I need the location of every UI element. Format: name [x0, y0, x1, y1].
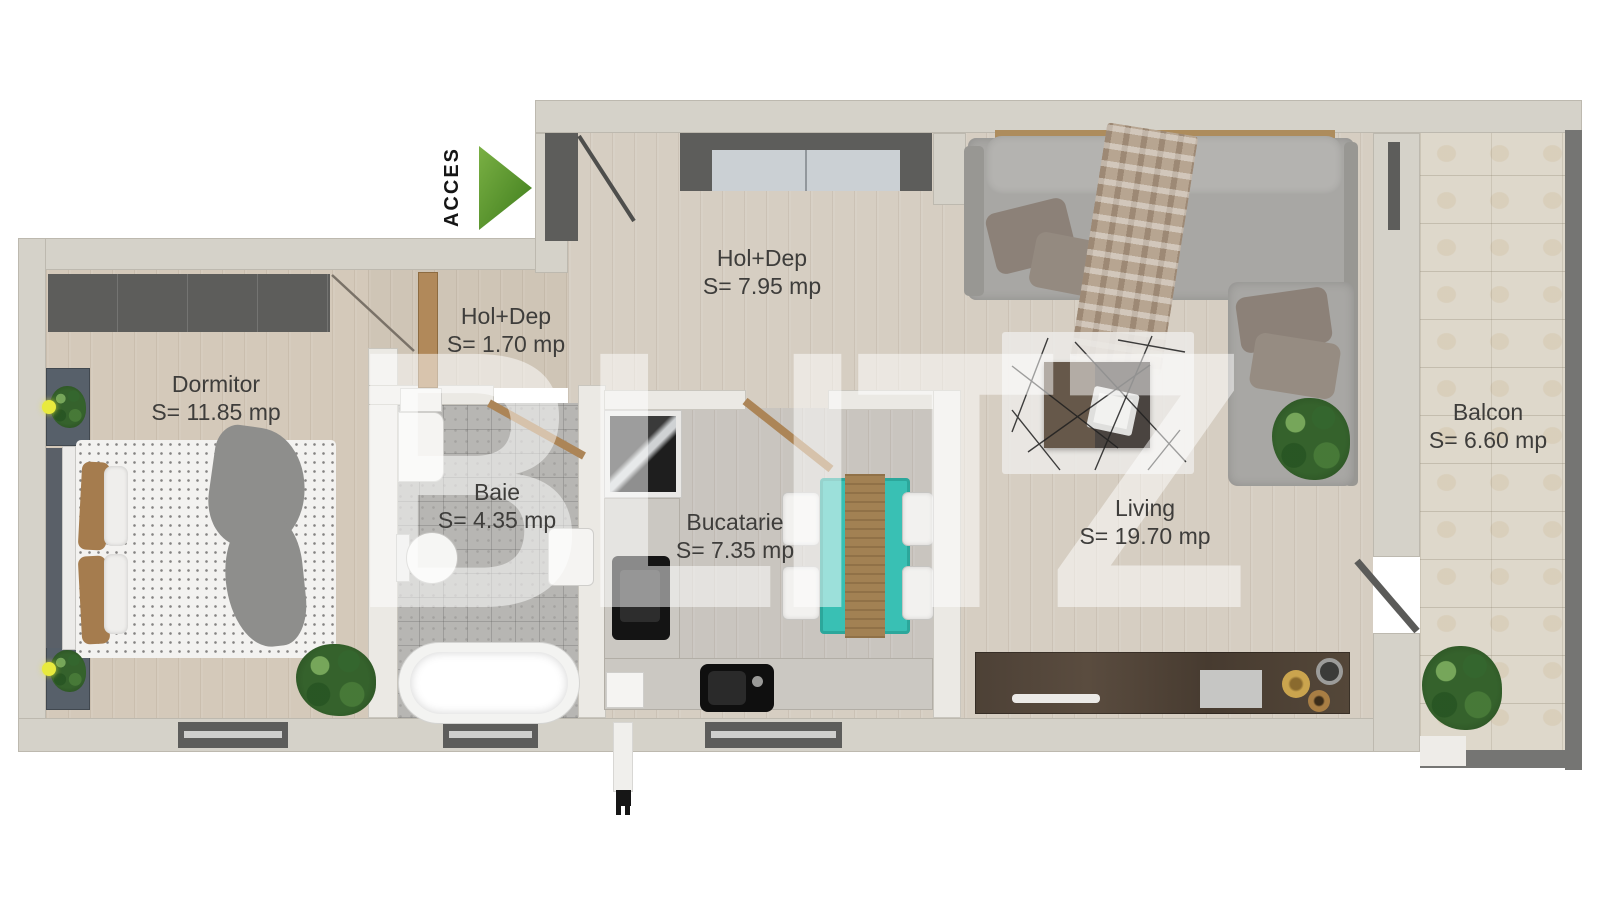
room-label-dormitor: Dormitor S= 11.85 mp: [151, 370, 280, 426]
balcony-door-leaf: [1357, 561, 1417, 631]
room-name: Living: [1079, 494, 1210, 522]
room-name: Dormitor: [151, 370, 280, 398]
floor-plan: BLITZ Dormitor S= 11.85 mp Hol+Dep S= 1.…: [0, 0, 1600, 900]
room-label-baie: Baie S= 4.35 mp: [438, 478, 556, 534]
room-label-hol-dep-mic: Hol+Dep S= 1.70 mp: [447, 302, 565, 358]
room-label-balcon: Balcon S= 6.60 mp: [1429, 398, 1547, 454]
room-area: S= 7.95 mp: [703, 272, 821, 300]
room-area: S= 19.70 mp: [1079, 522, 1210, 550]
room-name: Bucatarie: [676, 508, 794, 536]
acces-label: ACCES: [441, 147, 464, 227]
acces-label-wrap: ACCES: [441, 142, 464, 232]
room-area: S= 11.85 mp: [151, 398, 280, 426]
rug-pattern-lines: [1012, 336, 1186, 470]
room-name: Balcon: [1429, 398, 1547, 426]
room-area: S= 1.70 mp: [447, 330, 565, 358]
room-label-bucatarie: Bucatarie S= 7.35 mp: [676, 508, 794, 564]
room-name: Hol+Dep: [447, 302, 565, 330]
kitchen-door-leaf: [745, 401, 831, 469]
overlay-graphics: [0, 0, 1600, 900]
room-area: S= 4.35 mp: [438, 506, 556, 534]
room-area: S= 6.60 mp: [1429, 426, 1547, 454]
bedroom-door-swing: [332, 275, 414, 351]
room-area: S= 7.35 mp: [676, 536, 794, 564]
room-name: Hol+Dep: [703, 244, 821, 272]
entry-door-leaf: [579, 136, 634, 221]
bathroom-door-leaf: [489, 403, 584, 456]
room-label-living: Living S= 19.70 mp: [1079, 494, 1210, 550]
room-label-hol-dep-mare: Hol+Dep S= 7.95 mp: [703, 244, 821, 300]
room-name: Baie: [438, 478, 556, 506]
acces-arrow-icon: [479, 146, 532, 230]
